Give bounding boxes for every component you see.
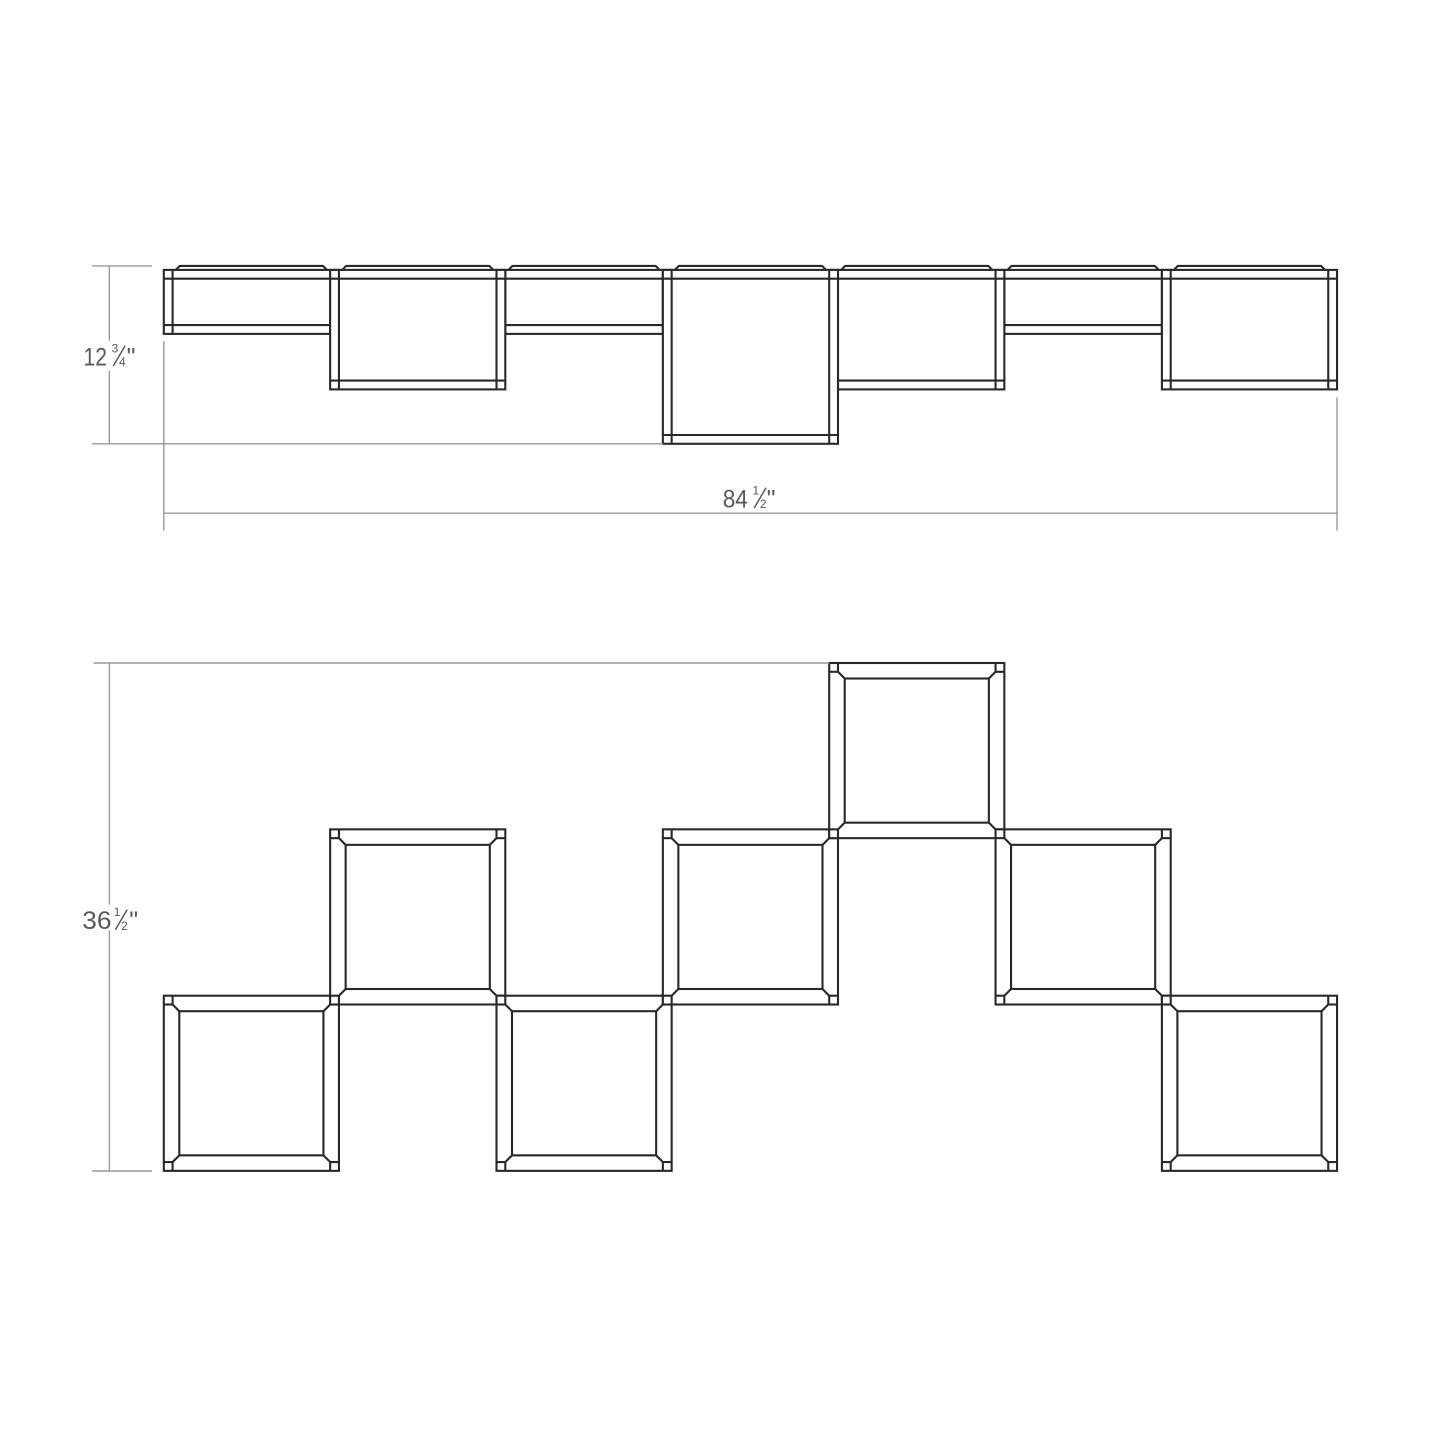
svg-text:1: 1: [114, 905, 121, 919]
svg-text:1: 1: [753, 483, 760, 497]
svg-text:12: 12: [84, 343, 108, 371]
svg-text:": ": [127, 343, 136, 371]
svg-text:36: 36: [82, 907, 111, 935]
svg-text:2: 2: [121, 919, 128, 933]
svg-text:": ": [129, 907, 138, 935]
svg-text:84: 84: [723, 485, 748, 513]
svg-text:4: 4: [119, 355, 126, 369]
svg-text:": ": [767, 485, 776, 513]
svg-text:3: 3: [112, 341, 119, 355]
